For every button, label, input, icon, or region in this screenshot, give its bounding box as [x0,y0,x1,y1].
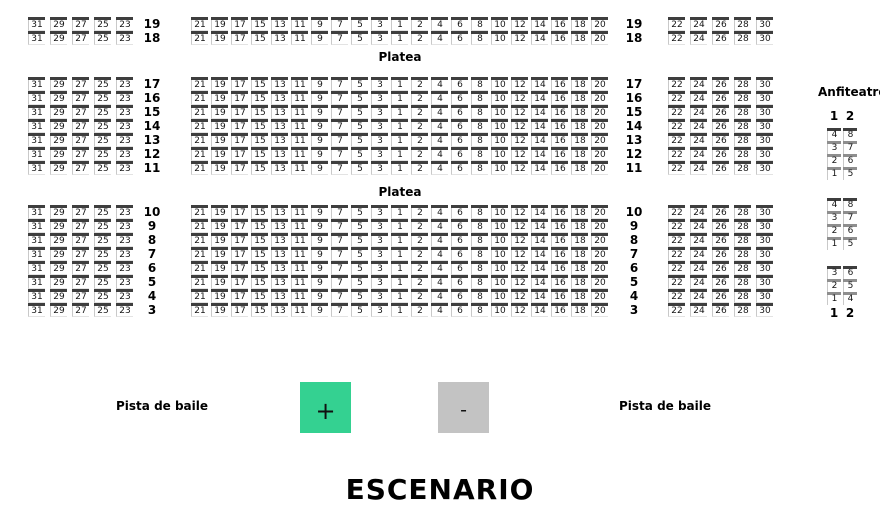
seat[interactable]: 22 [668,91,685,105]
seat[interactable]: 19 [211,275,228,289]
seat[interactable]: 5 [351,261,368,275]
seat[interactable]: 15 [251,289,268,303]
seat[interactable]: 11 [291,17,308,31]
seat[interactable]: 18 [571,289,588,303]
seat[interactable]: 14 [531,31,548,45]
seat[interactable]: 22 [668,247,685,261]
seat[interactable]: 3 [371,233,388,247]
seat[interactable]: 19 [211,147,228,161]
seat[interactable]: 6 [451,133,468,147]
anfiteatro-seat[interactable]: 7 [843,211,857,224]
seat[interactable]: 9 [311,91,328,105]
seat[interactable]: 13 [271,219,288,233]
seat[interactable]: 8 [471,275,488,289]
seat[interactable]: 26 [712,105,729,119]
anfiteatro-seat[interactable]: 3 [827,211,841,224]
seat[interactable]: 23 [116,219,133,233]
seat[interactable]: 19 [211,105,228,119]
seat[interactable]: 9 [311,17,328,31]
seat[interactable]: 8 [471,205,488,219]
seat[interactable]: 20 [591,119,608,133]
seat[interactable]: 20 [591,105,608,119]
seat[interactable]: 10 [491,261,508,275]
seat[interactable]: 13 [271,31,288,45]
seat[interactable]: 31 [28,261,45,275]
seat[interactable]: 15 [251,247,268,261]
seat[interactable]: 30 [756,205,773,219]
seat[interactable]: 14 [531,105,548,119]
seat[interactable]: 26 [712,17,729,31]
seat[interactable]: 15 [251,219,268,233]
seat[interactable]: 14 [531,303,548,317]
seat[interactable]: 6 [451,205,468,219]
seat[interactable]: 21 [191,219,208,233]
seat[interactable]: 15 [251,91,268,105]
seat[interactable]: 1 [391,275,408,289]
seat[interactable]: 6 [451,261,468,275]
seat[interactable]: 6 [451,289,468,303]
anfiteatro-seat[interactable]: 5 [843,167,857,180]
seat[interactable]: 11 [291,303,308,317]
seat[interactable]: 8 [471,17,488,31]
seat[interactable]: 27 [72,205,89,219]
anfiteatro-seat[interactable]: 6 [843,266,857,279]
anfiteatro-seat[interactable]: 3 [827,266,841,279]
seat[interactable]: 22 [668,119,685,133]
seat[interactable]: 14 [531,233,548,247]
seat[interactable]: 11 [291,77,308,91]
seat[interactable]: 4 [431,219,448,233]
seat[interactable]: 18 [571,31,588,45]
seat[interactable]: 19 [211,261,228,275]
seat[interactable]: 24 [690,105,707,119]
seat[interactable]: 31 [28,77,45,91]
seat[interactable]: 29 [50,77,67,91]
seat[interactable]: 8 [471,147,488,161]
seat[interactable]: 16 [551,303,568,317]
seat[interactable]: 24 [690,77,707,91]
seat[interactable]: 16 [551,119,568,133]
seat[interactable]: 17 [231,91,248,105]
seat[interactable]: 27 [72,133,89,147]
seat[interactable]: 27 [72,275,89,289]
seat[interactable]: 27 [72,91,89,105]
seat[interactable]: 5 [351,233,368,247]
seat[interactable]: 1 [391,133,408,147]
seat[interactable]: 18 [571,105,588,119]
seat[interactable]: 3 [371,247,388,261]
seat[interactable]: 7 [331,261,348,275]
seat[interactable]: 1 [391,147,408,161]
seat[interactable]: 1 [391,289,408,303]
seat[interactable]: 1 [391,233,408,247]
seat[interactable]: 27 [72,289,89,303]
seat[interactable]: 24 [690,289,707,303]
seat[interactable]: 5 [351,275,368,289]
seat[interactable]: 26 [712,77,729,91]
anfiteatro-seat[interactable]: 3 [827,141,841,154]
seat[interactable]: 9 [311,105,328,119]
seat[interactable]: 23 [116,133,133,147]
seat[interactable]: 21 [191,119,208,133]
seat[interactable]: 1 [391,77,408,91]
seat[interactable]: 28 [734,105,751,119]
seat[interactable]: 11 [291,133,308,147]
seat[interactable]: 22 [668,275,685,289]
seat[interactable]: 31 [28,119,45,133]
seat[interactable]: 23 [116,205,133,219]
seat[interactable]: 18 [571,77,588,91]
seat[interactable]: 12 [511,219,528,233]
seat[interactable]: 21 [191,289,208,303]
seat[interactable]: 7 [331,119,348,133]
seat[interactable]: 8 [471,303,488,317]
seat[interactable]: 4 [431,205,448,219]
seat[interactable]: 8 [471,91,488,105]
seat[interactable]: 25 [94,133,111,147]
seat[interactable]: 30 [756,17,773,31]
seat[interactable]: 3 [371,275,388,289]
anfiteatro-seat[interactable]: 5 [843,279,857,292]
seat[interactable]: 2 [411,261,428,275]
seat[interactable]: 27 [72,17,89,31]
seat[interactable]: 14 [531,205,548,219]
seat[interactable]: 7 [331,289,348,303]
seat[interactable]: 14 [531,91,548,105]
seat[interactable]: 16 [551,91,568,105]
seat[interactable]: 13 [271,233,288,247]
seat[interactable]: 2 [411,233,428,247]
seat[interactable]: 17 [231,247,248,261]
seat[interactable]: 31 [28,91,45,105]
seat[interactable]: 22 [668,205,685,219]
seat[interactable]: 1 [391,219,408,233]
seat[interactable]: 3 [371,91,388,105]
seat[interactable]: 10 [491,133,508,147]
seat[interactable]: 23 [116,91,133,105]
seat[interactable]: 21 [191,17,208,31]
seat[interactable]: 4 [431,303,448,317]
seat[interactable]: 2 [411,303,428,317]
seat[interactable]: 23 [116,247,133,261]
seat[interactable]: 28 [734,31,751,45]
seat[interactable]: 2 [411,147,428,161]
seat[interactable]: 29 [50,303,67,317]
seat[interactable]: 30 [756,219,773,233]
seat[interactable]: 31 [28,147,45,161]
seat[interactable]: 4 [431,133,448,147]
seat[interactable]: 26 [712,303,729,317]
seat[interactable]: 24 [690,31,707,45]
seat[interactable]: 5 [351,219,368,233]
seat[interactable]: 17 [231,17,248,31]
seat[interactable]: 27 [72,303,89,317]
seat[interactable]: 6 [451,247,468,261]
seat[interactable]: 6 [451,119,468,133]
seat[interactable]: 2 [411,17,428,31]
seat[interactable]: 19 [211,247,228,261]
seat[interactable]: 7 [331,105,348,119]
seat[interactable]: 6 [451,219,468,233]
seat[interactable]: 5 [351,77,368,91]
seat[interactable]: 17 [231,161,248,175]
seat[interactable]: 19 [211,77,228,91]
seat[interactable]: 28 [734,77,751,91]
seat[interactable]: 25 [94,247,111,261]
seat[interactable]: 27 [72,261,89,275]
seat[interactable]: 11 [291,247,308,261]
seat[interactable]: 25 [94,161,111,175]
seat[interactable]: 27 [72,247,89,261]
seat[interactable]: 3 [371,17,388,31]
seat[interactable]: 29 [50,205,67,219]
anfiteatro-seat[interactable]: 6 [843,154,857,167]
seat[interactable]: 9 [311,133,328,147]
seat[interactable]: 4 [431,77,448,91]
seat[interactable]: 2 [411,219,428,233]
seat[interactable]: 10 [491,233,508,247]
seat[interactable]: 21 [191,233,208,247]
seat[interactable]: 19 [211,205,228,219]
seat[interactable]: 16 [551,275,568,289]
seat[interactable]: 20 [591,161,608,175]
seat[interactable]: 25 [94,219,111,233]
seat[interactable]: 9 [311,77,328,91]
seat[interactable]: 2 [411,119,428,133]
seat[interactable]: 17 [231,289,248,303]
seat[interactable]: 2 [411,275,428,289]
seat[interactable]: 23 [116,105,133,119]
seat[interactable]: 12 [511,289,528,303]
seat[interactable]: 12 [511,247,528,261]
seat[interactable]: 6 [451,147,468,161]
seat[interactable]: 2 [411,77,428,91]
seat[interactable]: 3 [371,205,388,219]
seat[interactable]: 16 [551,31,568,45]
seat[interactable]: 3 [371,133,388,147]
seat[interactable]: 28 [734,303,751,317]
seat[interactable]: 5 [351,161,368,175]
seat[interactable]: 21 [191,303,208,317]
seat[interactable]: 21 [191,161,208,175]
seat[interactable]: 5 [351,133,368,147]
seat[interactable]: 28 [734,289,751,303]
seat[interactable]: 29 [50,133,67,147]
seat[interactable]: 18 [571,205,588,219]
anfiteatro-seat[interactable]: 1 [827,167,841,180]
seat[interactable]: 27 [72,77,89,91]
seat[interactable]: 20 [591,261,608,275]
seat[interactable]: 18 [571,261,588,275]
seat[interactable]: 14 [531,133,548,147]
seat[interactable]: 18 [571,247,588,261]
seat[interactable]: 29 [50,119,67,133]
seat[interactable]: 13 [271,303,288,317]
seat[interactable]: 25 [94,105,111,119]
seat[interactable]: 20 [591,289,608,303]
seat[interactable]: 10 [491,105,508,119]
seat[interactable]: 12 [511,303,528,317]
seat[interactable]: 26 [712,147,729,161]
seat[interactable]: 31 [28,275,45,289]
anfiteatro-seat[interactable]: 6 [843,224,857,237]
seat[interactable]: 30 [756,233,773,247]
seat[interactable]: 13 [271,119,288,133]
seat[interactable]: 17 [231,119,248,133]
seat[interactable]: 28 [734,133,751,147]
seat[interactable]: 25 [94,205,111,219]
seat[interactable]: 6 [451,303,468,317]
seat[interactable]: 4 [431,147,448,161]
seat[interactable]: 1 [391,205,408,219]
seat[interactable]: 14 [531,289,548,303]
seat[interactable]: 4 [431,17,448,31]
seat[interactable]: 12 [511,205,528,219]
seat[interactable]: 23 [116,31,133,45]
seat[interactable]: 13 [271,205,288,219]
seat[interactable]: 8 [471,31,488,45]
seat[interactable]: 26 [712,247,729,261]
seat[interactable]: 14 [531,219,548,233]
seat[interactable]: 20 [591,275,608,289]
seat[interactable]: 4 [431,161,448,175]
seat[interactable]: 30 [756,261,773,275]
seat[interactable]: 13 [271,247,288,261]
seat[interactable]: 12 [511,147,528,161]
seat[interactable]: 7 [331,91,348,105]
zoom-in-button[interactable]: + [300,382,351,433]
seat[interactable]: 30 [756,289,773,303]
seat[interactable]: 18 [571,119,588,133]
seat[interactable]: 2 [411,105,428,119]
seat[interactable]: 10 [491,275,508,289]
seat[interactable]: 7 [331,133,348,147]
seat[interactable]: 15 [251,205,268,219]
seat[interactable]: 18 [571,161,588,175]
seat[interactable]: 17 [231,205,248,219]
seat[interactable]: 27 [72,233,89,247]
seat[interactable]: 27 [72,147,89,161]
anfiteatro-seat[interactable]: 1 [827,237,841,250]
seat[interactable]: 12 [511,261,528,275]
seat[interactable]: 31 [28,303,45,317]
seat[interactable]: 11 [291,105,308,119]
seat[interactable]: 15 [251,261,268,275]
seat[interactable]: 19 [211,303,228,317]
seat[interactable]: 22 [668,289,685,303]
seat[interactable]: 7 [331,275,348,289]
seat[interactable]: 3 [371,161,388,175]
seat[interactable]: 26 [712,275,729,289]
seat[interactable]: 11 [291,205,308,219]
seat[interactable]: 4 [431,275,448,289]
seat[interactable]: 24 [690,219,707,233]
seat[interactable]: 18 [571,133,588,147]
seat[interactable]: 7 [331,77,348,91]
seat[interactable]: 6 [451,91,468,105]
seat[interactable]: 13 [271,261,288,275]
seat[interactable]: 13 [271,17,288,31]
seat[interactable]: 24 [690,161,707,175]
seat[interactable]: 8 [471,161,488,175]
seat[interactable]: 26 [712,91,729,105]
seat[interactable]: 25 [94,233,111,247]
seat[interactable]: 22 [668,233,685,247]
seat[interactable]: 29 [50,261,67,275]
seat[interactable]: 29 [50,219,67,233]
seat[interactable]: 10 [491,31,508,45]
seat[interactable]: 31 [28,31,45,45]
seat[interactable]: 17 [231,31,248,45]
seat[interactable]: 24 [690,233,707,247]
seat[interactable]: 12 [511,17,528,31]
seat[interactable]: 2 [411,289,428,303]
seat[interactable]: 8 [471,261,488,275]
seat[interactable]: 2 [411,31,428,45]
seat[interactable]: 28 [734,275,751,289]
seat[interactable]: 27 [72,31,89,45]
seat[interactable]: 30 [756,119,773,133]
seat[interactable]: 15 [251,161,268,175]
seat[interactable]: 3 [371,303,388,317]
seat[interactable]: 29 [50,275,67,289]
seat[interactable]: 24 [690,247,707,261]
seat[interactable]: 24 [690,303,707,317]
seat[interactable]: 3 [371,289,388,303]
seat[interactable]: 19 [211,31,228,45]
seat[interactable]: 5 [351,91,368,105]
seat[interactable]: 9 [311,233,328,247]
seat[interactable]: 9 [311,219,328,233]
seat[interactable]: 31 [28,105,45,119]
seat[interactable]: 26 [712,205,729,219]
seat[interactable]: 6 [451,233,468,247]
seat[interactable]: 19 [211,91,228,105]
seat[interactable]: 10 [491,91,508,105]
seat[interactable]: 13 [271,91,288,105]
seat[interactable]: 31 [28,219,45,233]
seat[interactable]: 18 [571,219,588,233]
seat[interactable]: 11 [291,289,308,303]
seat[interactable]: 31 [28,133,45,147]
seat[interactable]: 9 [311,31,328,45]
anfiteatro-seat[interactable]: 7 [843,141,857,154]
seat[interactable]: 30 [756,247,773,261]
seat[interactable]: 2 [411,91,428,105]
seat[interactable]: 5 [351,289,368,303]
seat[interactable]: 4 [431,119,448,133]
seat[interactable]: 29 [50,147,67,161]
seat[interactable]: 1 [391,161,408,175]
seat[interactable]: 19 [211,161,228,175]
seat[interactable]: 17 [231,219,248,233]
seat[interactable]: 20 [591,303,608,317]
seat[interactable]: 25 [94,303,111,317]
seat[interactable]: 17 [231,303,248,317]
seat[interactable]: 4 [431,105,448,119]
seat[interactable]: 11 [291,161,308,175]
seat[interactable]: 26 [712,31,729,45]
seat[interactable]: 23 [116,303,133,317]
seat[interactable]: 21 [191,91,208,105]
seat[interactable]: 28 [734,247,751,261]
seat[interactable]: 26 [712,233,729,247]
seat[interactable]: 18 [571,233,588,247]
seat[interactable]: 29 [50,289,67,303]
seat[interactable]: 16 [551,161,568,175]
seat[interactable]: 30 [756,133,773,147]
seat[interactable]: 12 [511,31,528,45]
